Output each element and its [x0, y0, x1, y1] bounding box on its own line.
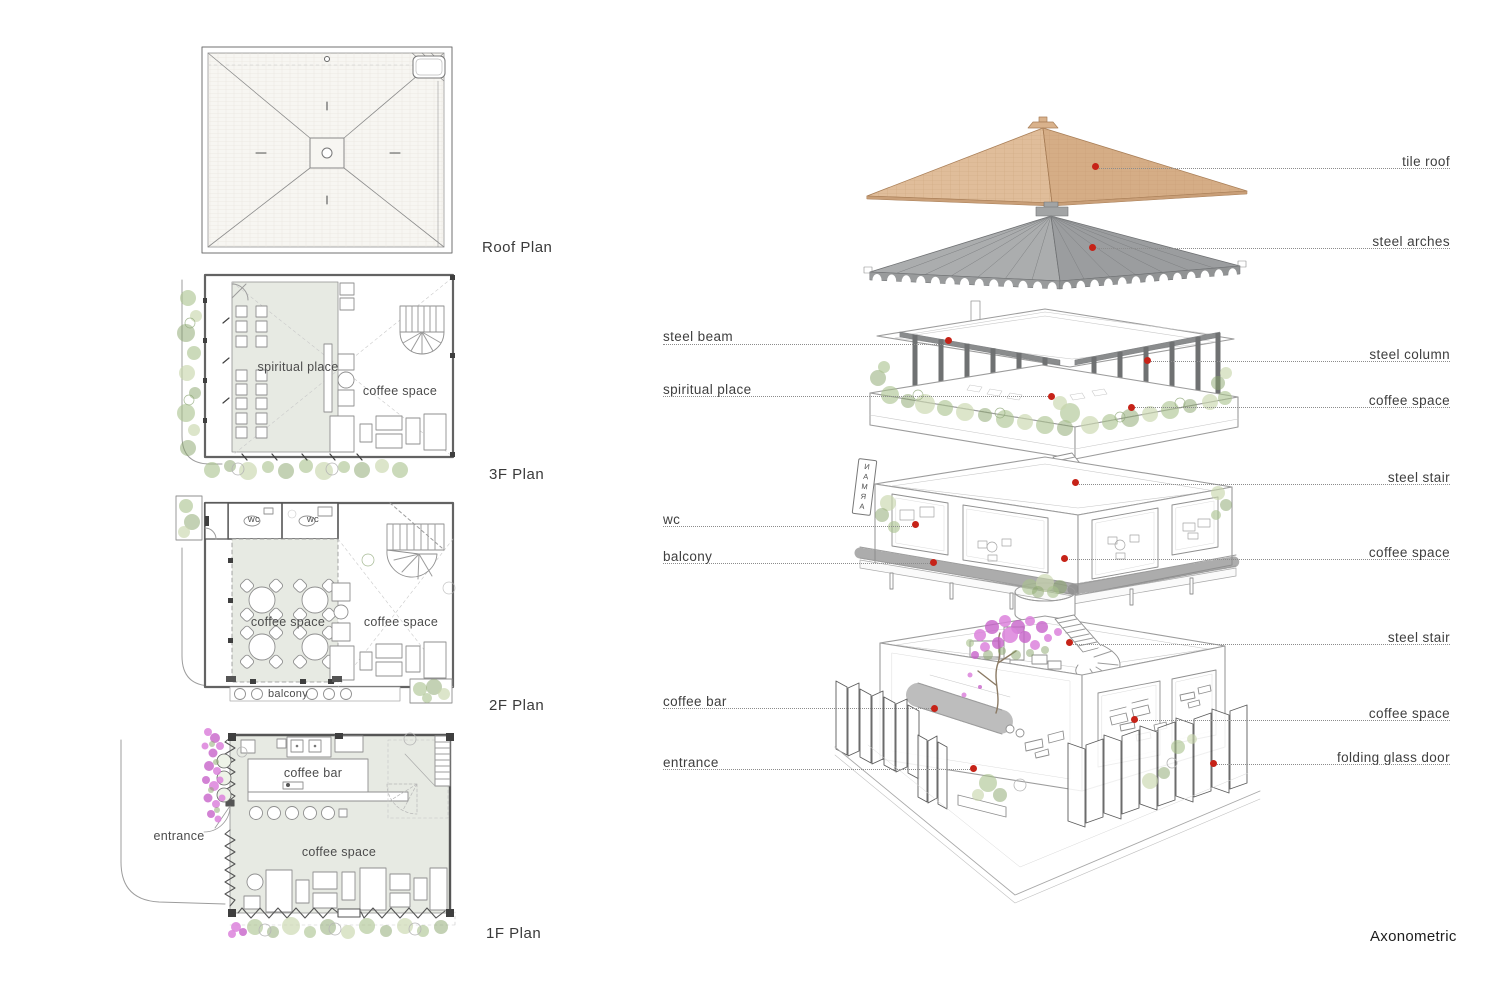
- first-floor-plan-drawing: [105, 722, 475, 967]
- leader-line: [663, 563, 932, 564]
- room-label-coffee-space-2f-left: coffee space: [246, 615, 330, 630]
- marker-dot: [1089, 244, 1096, 251]
- first-floor-layer: [835, 615, 1260, 903]
- room-label-coffee-space-3f: coffee space: [356, 384, 444, 399]
- leader-line: [663, 769, 972, 770]
- room-label-entrance: entrance: [147, 829, 211, 844]
- leader-line: [1077, 484, 1450, 485]
- annotation-folding-glass-door: folding glass door: [1337, 750, 1450, 765]
- marker-dot: [970, 765, 977, 772]
- annotation-steel-stair-upper: steel stair: [1388, 470, 1450, 485]
- room-label-coffee-space-2f-right: coffee space: [357, 615, 445, 630]
- marker-dot: [930, 559, 937, 566]
- roof-plan-title: Roof Plan: [482, 239, 552, 256]
- first-floor-plan-title: 1F Plan: [486, 925, 541, 942]
- axonometric-title: Axonometric: [1370, 928, 1457, 945]
- third-floor-layer: [870, 301, 1238, 459]
- annotation-tile-roof: tile roof: [1402, 154, 1450, 169]
- annotation-steel-beam: steel beam: [663, 329, 733, 344]
- leader-line: [663, 396, 1050, 397]
- leader-line: [1215, 764, 1450, 765]
- room-label-wc-left: wc: [240, 514, 268, 525]
- marker-dot: [1092, 163, 1099, 170]
- marker-dot: [912, 521, 919, 528]
- third-floor-plan-drawing: [172, 258, 472, 493]
- leader-line: [1097, 168, 1450, 169]
- marker-dot: [931, 705, 938, 712]
- room-label-wc-right: wc: [299, 514, 327, 525]
- leader-line: [1136, 720, 1450, 721]
- balcony-strip: [230, 687, 400, 701]
- room-label-spiritual-place: spiritual place: [255, 360, 341, 375]
- annotation-coffee-space-1f: coffee space: [1369, 706, 1450, 721]
- marker-dot: [1072, 479, 1079, 486]
- annotation-entrance: entrance: [663, 755, 719, 770]
- corner-planter: [410, 679, 452, 703]
- leader-line: [1149, 361, 1450, 362]
- annotation-steel-stair-lower: steel stair: [1388, 630, 1450, 645]
- annotation-steel-column: steel column: [1369, 347, 1450, 362]
- room-label-balcony: balcony: [263, 688, 313, 701]
- annotation-coffee-bar: coffee bar: [663, 694, 727, 709]
- marker-dot: [1061, 555, 1068, 562]
- second-floor-plan-title: 2F Plan: [489, 697, 544, 714]
- axonometric-drawing: [820, 95, 1270, 930]
- leader-line: [1071, 644, 1450, 645]
- leader-line: [1066, 559, 1450, 560]
- marker-dot: [1066, 639, 1073, 646]
- leader-line: [663, 708, 933, 709]
- annotation-steel-arches: steel arches: [1372, 234, 1450, 249]
- leader-line: [1133, 407, 1450, 408]
- marker-dot: [1210, 760, 1217, 767]
- leader-line: [663, 526, 914, 527]
- roof-plan-drawing: [198, 42, 458, 257]
- marker-dot: [1128, 404, 1135, 411]
- marker-dot: [945, 337, 952, 344]
- room-label-coffee-space-1f: coffee space: [294, 845, 384, 860]
- tile-roof-layer: [867, 117, 1247, 206]
- leader-line: [1094, 248, 1450, 249]
- third-floor-plan-title: 3F Plan: [489, 466, 544, 483]
- annotation-coffee-space-3f: coffee space: [1369, 393, 1450, 408]
- leader-line: [663, 344, 947, 345]
- annotation-balcony: balcony: [663, 549, 712, 564]
- marker-dot: [1131, 716, 1138, 723]
- marker-dot: [1144, 357, 1151, 364]
- annotation-wc: wc: [663, 512, 680, 527]
- annotation-spiritual-place: spiritual place: [663, 382, 752, 397]
- marker-dot: [1048, 393, 1055, 400]
- room-label-coffee-bar: coffee bar: [277, 766, 349, 781]
- architecture-sheet: NAMRA Roof Plan 3F Plan 2F Plan 1F Plan …: [0, 0, 1500, 990]
- annotation-coffee-space-2f: coffee space: [1369, 545, 1450, 560]
